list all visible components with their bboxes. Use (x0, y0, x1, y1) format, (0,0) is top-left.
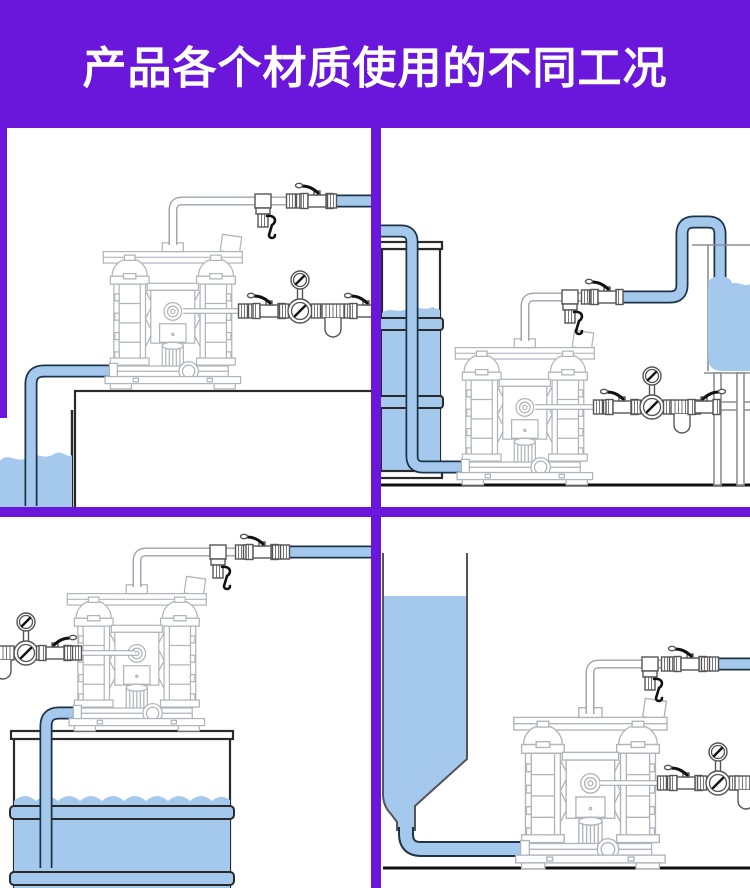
pouring-liquid (708, 276, 732, 292)
page-title: 产品各个材质使用的不同工况 (83, 32, 668, 96)
ball-valve-icon (586, 279, 624, 304)
ball-valve-icon (665, 765, 703, 790)
panel-bottom-right-hopper-feed (383, 553, 750, 869)
elevated-tank (692, 245, 750, 485)
pressure-regulator-icon (706, 743, 730, 795)
air-filter-icon (735, 776, 750, 809)
panel-top-left-floor-tank (0, 183, 382, 511)
suction-pipe (406, 827, 520, 849)
air-filter-icon (322, 304, 344, 337)
horizontal-divider (0, 507, 750, 517)
working-conditions-diagram (0, 128, 750, 888)
discharge-pipe (525, 222, 720, 341)
product-infographic: 产品各个材质使用的不同工况 (0, 0, 750, 888)
panel-bottom-left-barrel-mount (0, 534, 374, 888)
pressure-regulator-icon (14, 613, 38, 665)
ball-valve-icon (688, 389, 726, 414)
stand-leg (737, 373, 744, 485)
air-filter-icon (0, 646, 14, 679)
panel-top-right-drum-to-tank (379, 222, 750, 485)
header-banner: 产品各个材质使用的不同工况 (0, 0, 750, 128)
ball-valve-icon (669, 646, 707, 671)
pressure-regulator-icon (288, 271, 312, 323)
pressure-regulator-icon (640, 367, 664, 419)
hopper (383, 553, 467, 830)
left-border-strip (0, 128, 7, 418)
platform (75, 391, 375, 511)
